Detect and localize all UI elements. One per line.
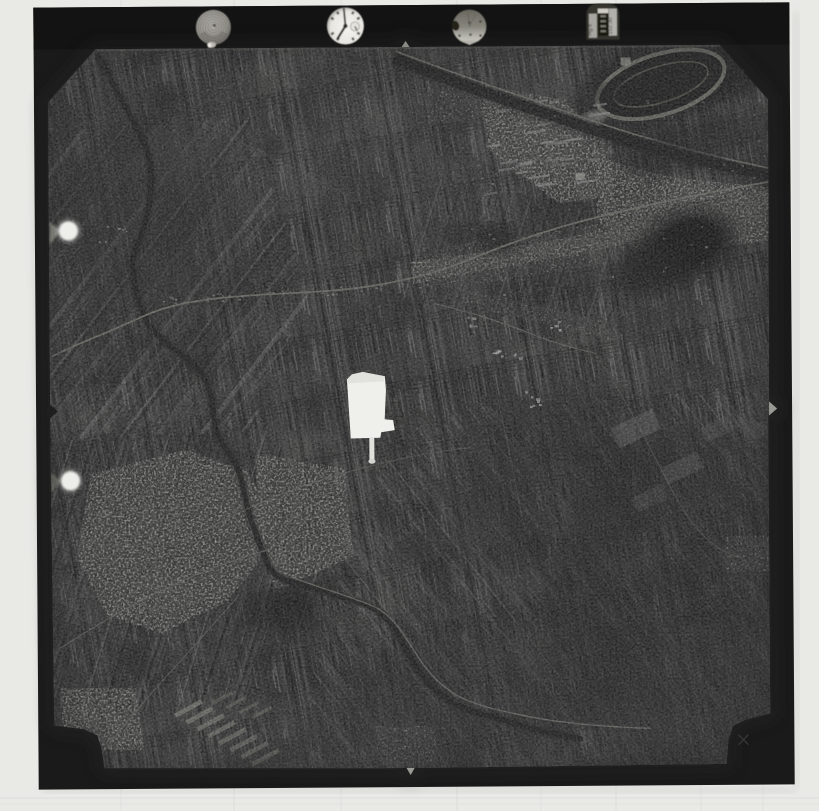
svg-text:Ag'8: Ag'8	[587, 23, 593, 36]
svg-text:152.30: 152.30	[608, 17, 614, 34]
